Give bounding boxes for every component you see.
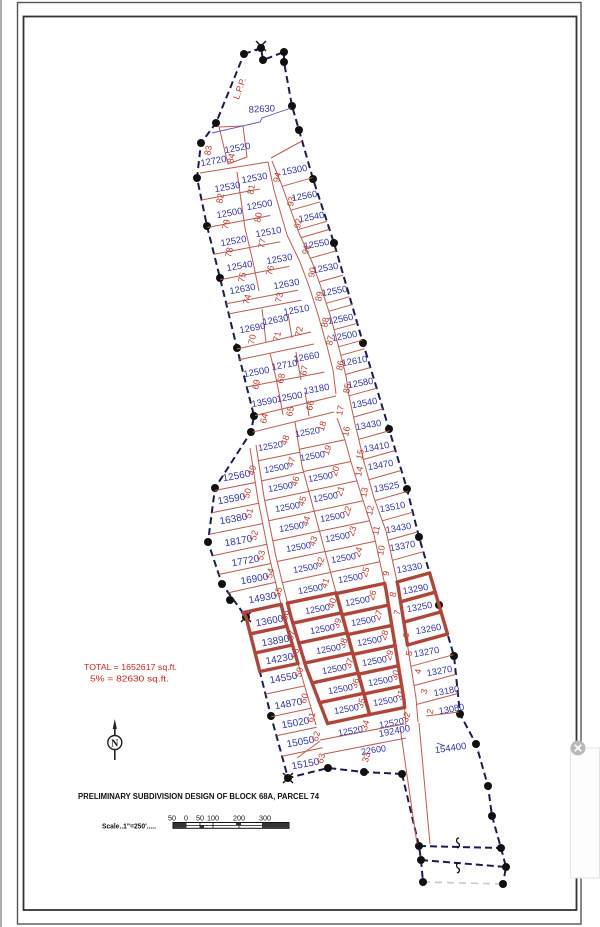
svg-text:14: 14 bbox=[353, 465, 365, 477]
svg-text:81: 81 bbox=[245, 183, 257, 195]
svg-text:65: 65 bbox=[284, 405, 296, 417]
svg-text:66: 66 bbox=[304, 399, 316, 411]
svg-text:0: 0 bbox=[184, 814, 188, 823]
svg-text:12: 12 bbox=[364, 504, 376, 516]
svg-text:13: 13 bbox=[358, 486, 370, 498]
svg-text:100: 100 bbox=[207, 814, 219, 823]
svg-text:10: 10 bbox=[375, 544, 387, 556]
svg-text:Scale..1"=250'.....: Scale..1"=250'..... bbox=[102, 824, 156, 831]
svg-text:69: 69 bbox=[250, 378, 262, 390]
svg-text:TOTAL = 1652617 sq.ft.: TOTAL = 1652617 sq.ft. bbox=[84, 663, 177, 672]
svg-text:68: 68 bbox=[275, 372, 287, 384]
svg-text:72: 72 bbox=[293, 325, 305, 337]
svg-text:5% = 82630 sq.ft.: 5% = 82630 sq.ft. bbox=[90, 675, 169, 684]
svg-text:64: 64 bbox=[258, 412, 270, 424]
svg-text:82: 82 bbox=[214, 192, 226, 204]
svg-text:50: 50 bbox=[168, 814, 176, 823]
svg-text:94: 94 bbox=[271, 171, 283, 183]
svg-text:82630: 82630 bbox=[248, 103, 275, 115]
svg-text:76: 76 bbox=[264, 264, 276, 276]
svg-text:92: 92 bbox=[292, 217, 304, 229]
svg-text:77: 77 bbox=[256, 237, 268, 249]
svg-text:79: 79 bbox=[220, 218, 232, 230]
svg-text:71: 71 bbox=[271, 330, 283, 342]
svg-text:17: 17 bbox=[334, 404, 346, 416]
svg-text:87: 87 bbox=[324, 334, 336, 346]
svg-text:74: 74 bbox=[241, 293, 253, 305]
svg-text:85: 85 bbox=[341, 382, 353, 394]
svg-text:200: 200 bbox=[233, 814, 245, 823]
svg-text:88: 88 bbox=[319, 316, 331, 328]
svg-text:89: 89 bbox=[313, 290, 325, 302]
svg-text:84: 84 bbox=[225, 152, 237, 164]
svg-text:50: 50 bbox=[196, 814, 204, 823]
svg-text:300: 300 bbox=[259, 814, 271, 823]
svg-text:15: 15 bbox=[354, 448, 366, 460]
svg-text:91: 91 bbox=[300, 243, 312, 255]
svg-text:93: 93 bbox=[285, 195, 297, 207]
svg-text:83: 83 bbox=[202, 144, 214, 156]
svg-text:78: 78 bbox=[223, 246, 235, 258]
svg-text:90: 90 bbox=[306, 266, 318, 278]
svg-text:86: 86 bbox=[334, 359, 346, 371]
svg-text:67: 67 bbox=[298, 364, 310, 376]
svg-text:70: 70 bbox=[246, 333, 258, 345]
svg-text:80: 80 bbox=[252, 211, 264, 223]
svg-text:16: 16 bbox=[340, 425, 352, 437]
svg-text:PRELIMINARY SUBDIVISION DESIGN: PRELIMINARY SUBDIVISION DESIGN OF BLOCK … bbox=[78, 791, 319, 801]
svg-text:73: 73 bbox=[273, 291, 285, 303]
svg-text:N: N bbox=[111, 739, 119, 750]
